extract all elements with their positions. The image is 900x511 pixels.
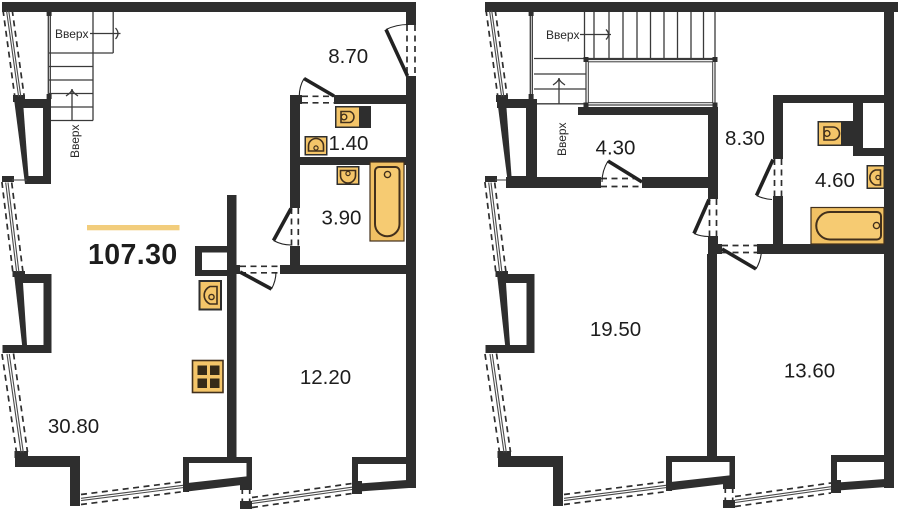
svg-text:4.60: 4.60: [815, 169, 855, 192]
svg-text:3.90: 3.90: [322, 207, 362, 230]
svg-text:Вверх: Вверх: [546, 28, 579, 42]
svg-text:107.30: 107.30: [88, 239, 178, 271]
svg-text:8.70: 8.70: [328, 45, 368, 68]
svg-text:Вверх: Вверх: [555, 123, 569, 156]
svg-text:19.50: 19.50: [590, 318, 641, 341]
svg-text:Вверх: Вверх: [68, 125, 82, 158]
svg-text:13.60: 13.60: [784, 360, 835, 383]
svg-text:30.80: 30.80: [48, 415, 99, 438]
svg-text:8.30: 8.30: [725, 127, 765, 150]
svg-text:Вверх: Вверх: [55, 27, 88, 41]
svg-text:1.40: 1.40: [329, 132, 369, 155]
svg-text:12.20: 12.20: [300, 366, 351, 389]
svg-text:4.30: 4.30: [596, 137, 636, 160]
